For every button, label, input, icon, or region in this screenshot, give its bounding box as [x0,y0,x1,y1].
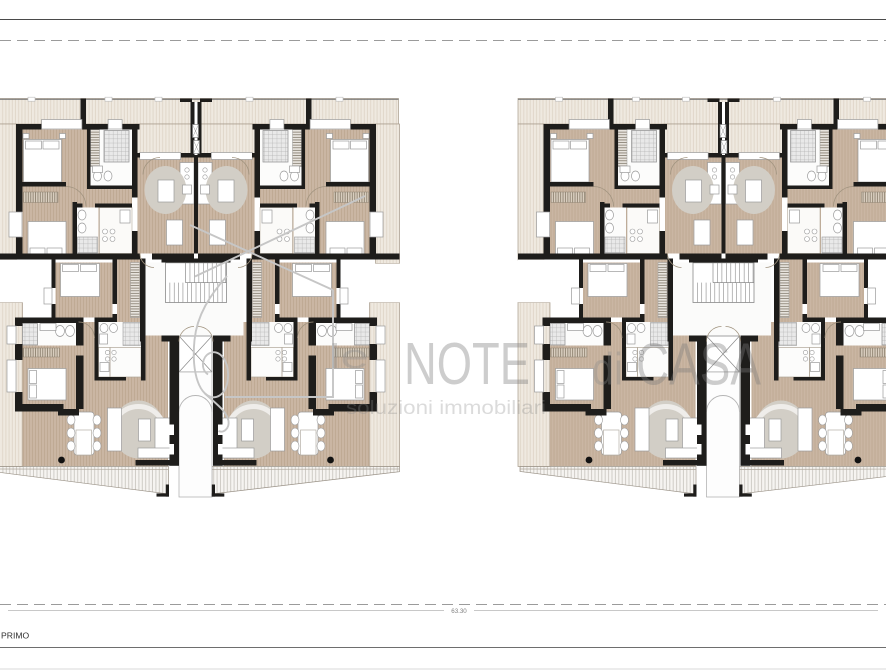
svg-text:PRIMO: PRIMO [1,631,29,641]
svg-text:le: le [329,338,369,376]
svg-text:soluzioni immobiliari: soluzioni immobiliari [346,398,546,419]
svg-text:di: di [592,344,623,395]
svg-text:CASA: CASA [636,332,761,398]
svg-text:NOTE: NOTE [404,331,530,397]
svg-text:63.30: 63.30 [451,608,467,615]
